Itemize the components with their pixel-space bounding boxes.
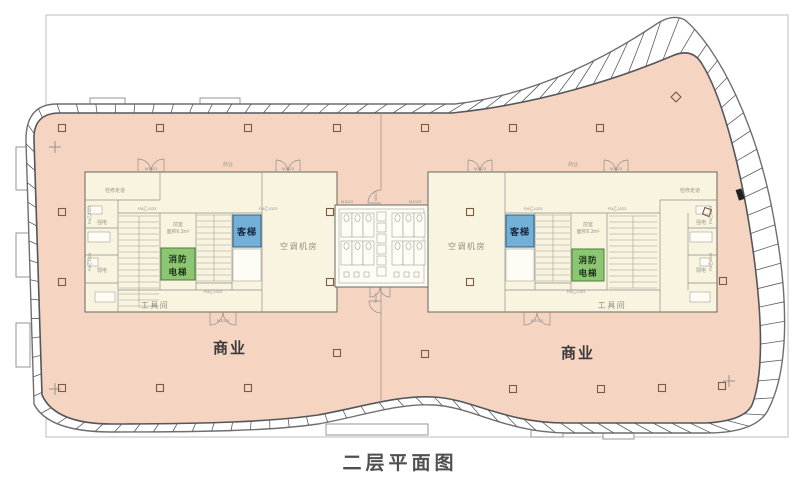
door-tag: M1023 <box>409 199 422 204</box>
facade-bay <box>326 424 428 435</box>
passenger-lift-label-right: 客梯 <box>509 226 530 237</box>
passenger-lift-label-left: 客梯 <box>236 226 257 237</box>
door-tag: M1023 <box>145 166 158 171</box>
weak-power-label-right: 弱电 <box>696 267 706 274</box>
drawing-title: 二层平面图 <box>0 448 800 475</box>
zone-label-small-left: 商业 <box>223 161 233 168</box>
zone-label-commercial-left: 商业 <box>213 339 247 357</box>
side-door-tag: M823 <box>373 292 378 303</box>
door-tag: M1023 <box>282 166 295 171</box>
fire-door-tag: FM乙1023 <box>707 205 713 224</box>
ac-room-label-right: 空调机房 <box>448 241 486 251</box>
lift-shaft <box>233 249 261 281</box>
zone-label-small-right: 商业 <box>568 161 578 168</box>
fire-door-tag: FM乙1023 <box>86 252 92 271</box>
fire-lift-label-left-1: 消防 <box>168 254 187 264</box>
floor-plan-drawing: 商业 商业 商业 商业 客梯 客梯 消防 电梯 消防 电梯 空调机房 空调机房 … <box>0 0 800 480</box>
fire-door-tag: FM乙1023 <box>86 205 92 224</box>
vestibule-label-left: 前室 <box>173 221 183 228</box>
weak-power-label-left: 弱电 <box>97 267 107 274</box>
lift-shaft <box>506 249 534 281</box>
side-door-tag: M823 <box>373 190 378 201</box>
fire-lift-label-right-1: 消防 <box>578 255 597 265</box>
tool-room-label-right: 工具间 <box>598 301 627 310</box>
service-corridor-label-left: 检修走道 <box>105 187 125 194</box>
facade-bay <box>16 323 30 367</box>
fire-door-tag: FM乙1023 <box>138 205 157 211</box>
vestibule-label-right: 前室 <box>583 221 593 228</box>
fire-door-tag: FM乙1023 <box>524 205 543 211</box>
door-tag: M1023 <box>341 199 354 204</box>
zone-label-commercial-right: 商业 <box>561 344 595 362</box>
ac-room-label-left: 空调机房 <box>280 241 318 251</box>
door-tag: M1023 <box>474 166 487 171</box>
door-tag: M1023 <box>217 318 230 323</box>
vestibule-area-left: 面积6.3m² <box>167 228 190 235</box>
fire-door-tag: FM乙1023 <box>567 288 586 294</box>
fire-door-tag: FM乙1023 <box>259 205 278 211</box>
door-tag: M1023 <box>531 318 544 323</box>
strong-power-label-left: 强电 <box>97 219 107 226</box>
fire-lift-label-right-2: 电梯 <box>578 268 597 278</box>
door-tag: M1023 <box>610 166 623 171</box>
strong-power-label-right: 强电 <box>696 219 706 226</box>
fire-lift-label-left-2: 电梯 <box>168 267 187 277</box>
fire-door-tag: FM乙1023 <box>204 288 223 294</box>
facade-bay <box>16 233 30 277</box>
vestibule-area-right: 面积6.3m² <box>577 228 600 235</box>
tool-room-label-left: 工具间 <box>141 301 170 310</box>
service-corridor-label-right: 检修走道 <box>680 187 700 194</box>
floor-plan-sheet: 商业 商业 商业 商业 客梯 客梯 消防 电梯 消防 电梯 空调机房 空调机房 … <box>0 0 800 480</box>
fire-door-tag: FM乙1023 <box>707 252 713 271</box>
fire-door-tag: FM乙1023 <box>608 205 627 211</box>
